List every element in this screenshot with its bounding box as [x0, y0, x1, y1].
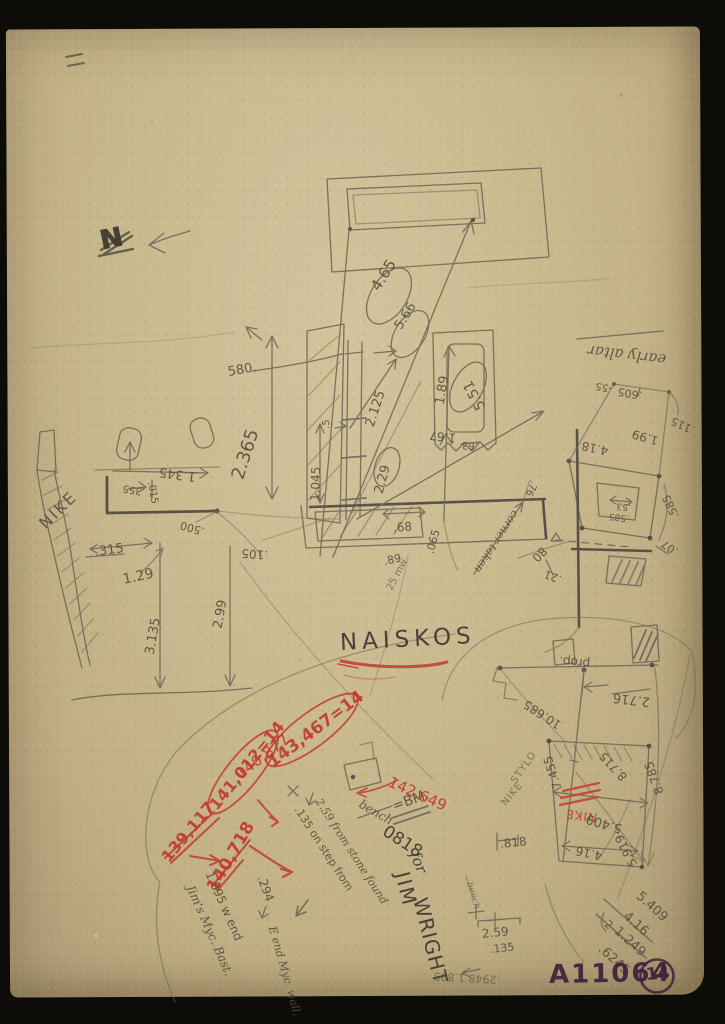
dim-135: .135 — [489, 941, 515, 955]
altar-dim-55: -55 — [595, 380, 613, 393]
elev-dim-63: .63 — [462, 439, 479, 450]
altar-dim-53: .53 — [616, 500, 631, 511]
elev-dim-167: 1.67 — [429, 429, 457, 444]
elev-dim-5: .5 — [322, 419, 332, 429]
altar-dim-585-inner: .585 — [609, 511, 630, 522]
elev-dim-105: .105 — [241, 547, 268, 561]
bastion-prop-label: prop. — [558, 655, 590, 670]
dim-flipped-2948-1895: .2948 1.895 — [433, 971, 500, 985]
elev-dim-1045: 1.045 — [309, 466, 322, 501]
dim-818: .818 — [499, 835, 527, 850]
page-number-circled: 14 — [645, 965, 670, 984]
scanned-sketch-page: N 4.65 5.66 580. 2.365 2.125 5.51 2.29 1… — [0, 0, 725, 1024]
dim-259: 2.59 — [481, 925, 509, 940]
elev-dim-68: .68 — [392, 520, 412, 534]
nike-dim-315: .315 — [94, 542, 124, 559]
